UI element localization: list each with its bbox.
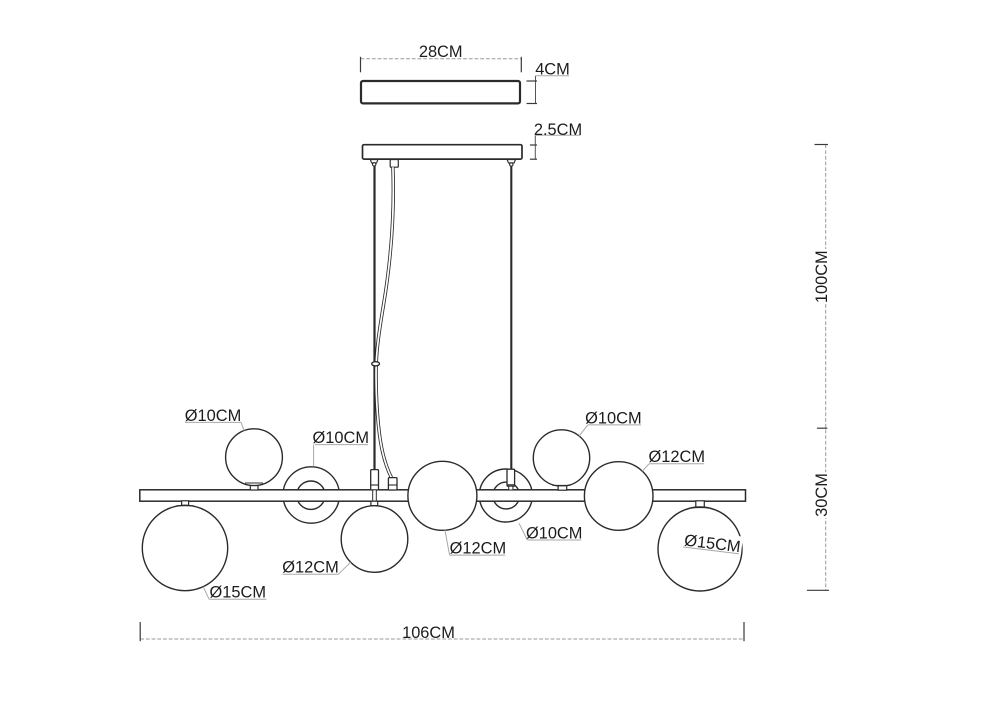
svg-text:Ø10CM: Ø10CM: [585, 409, 641, 427]
svg-text:106CM: 106CM: [402, 624, 455, 642]
svg-text:Ø10CM: Ø10CM: [185, 407, 241, 425]
svg-text:100CM: 100CM: [813, 250, 831, 303]
svg-text:2.5CM: 2.5CM: [534, 121, 582, 139]
svg-text:30CM: 30CM: [813, 473, 831, 517]
svg-text:4CM: 4CM: [535, 60, 570, 78]
svg-text:28CM: 28CM: [419, 43, 463, 61]
svg-text:Ø12CM: Ø12CM: [282, 559, 338, 577]
svg-text:Ø12CM: Ø12CM: [450, 540, 506, 558]
svg-text:Ø15CM: Ø15CM: [210, 584, 266, 602]
svg-text:Ø12CM: Ø12CM: [649, 448, 705, 466]
svg-text:Ø10CM: Ø10CM: [526, 524, 582, 542]
svg-text:Ø10CM: Ø10CM: [313, 429, 369, 447]
